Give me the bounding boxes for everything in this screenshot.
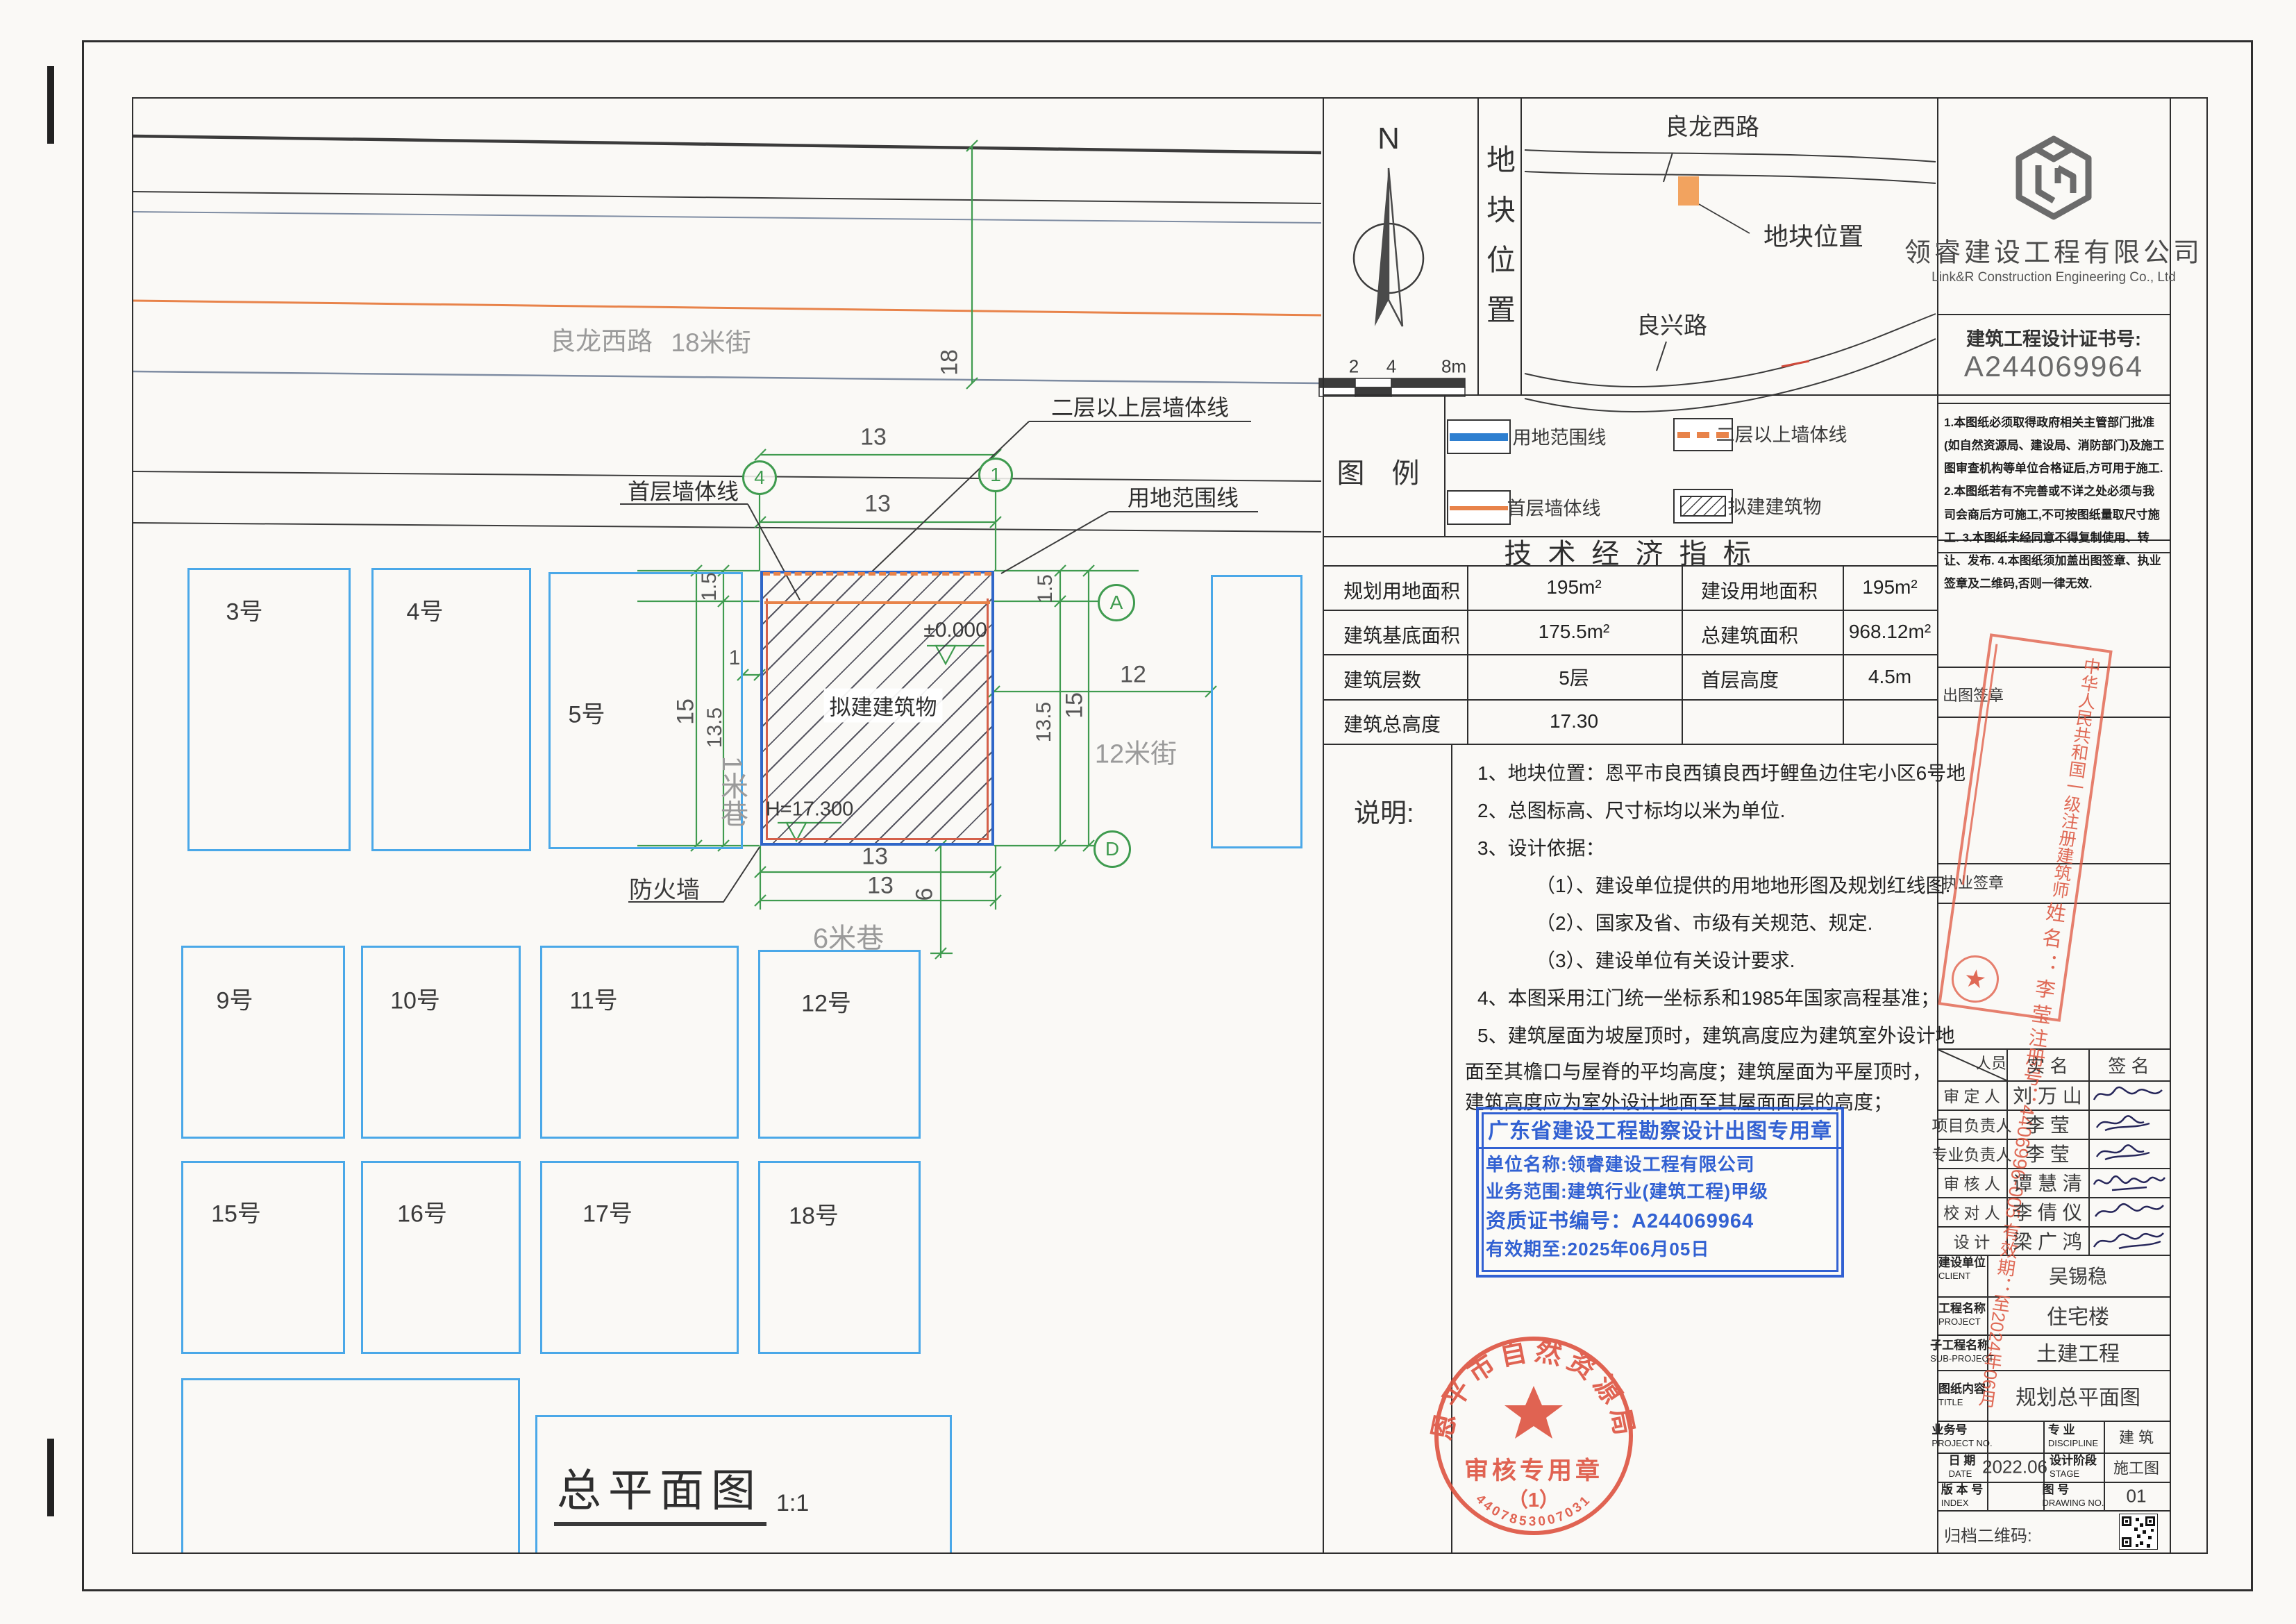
plot-12 — [758, 950, 921, 1139]
plot-label: 16号 — [397, 1195, 447, 1229]
ib-r7-zh2-text: 图 号 — [2042, 1483, 2069, 1496]
ib-r5-value2: 建 筑 — [2119, 1425, 2154, 1448]
ib-r1-value: 吴锡稳 — [2049, 1262, 2107, 1289]
tb-h-cert — [1937, 314, 2170, 315]
dim-6-alley: 6 — [912, 888, 939, 901]
ib-r6-zh: 日 期DATE — [1949, 1454, 1976, 1480]
note-3c: （3）、建设单位有关设计要求. — [1536, 946, 1795, 973]
note-5b: 面至其檐口与屋脊的平均高度；建筑屋面为平屋顶时， — [1465, 1057, 1932, 1085]
tb-v-ind1 — [1467, 565, 1468, 744]
plan-title-scale: 1:1 — [776, 1490, 809, 1517]
dim-13-bottom-a: 13 — [862, 844, 888, 871]
plot-17 — [540, 1161, 739, 1354]
plot-label: 11号 — [569, 982, 617, 1016]
street-label-6m: 6米巷 — [813, 916, 884, 956]
signature-scribble — [2091, 1111, 2166, 1137]
shuoming-label: 说明: — [1354, 792, 1414, 830]
tb-h-ind1 — [1323, 610, 1937, 611]
tb-v-ind3 — [1843, 565, 1844, 744]
blue-stamp-unit: 单位名称:领睿建设工程有限公司 — [1479, 1149, 1841, 1176]
company-name: 领睿建设工程有限公司 — [1904, 231, 2203, 269]
location-side-label: 地块位置 — [1478, 144, 1520, 344]
scale-tick-4: 4 — [1386, 356, 1396, 378]
plot-label: 5号 — [569, 696, 605, 730]
dim-13p5-right: 13.5 — [1032, 702, 1056, 742]
ind-r3-l2: 首层高度 — [1701, 665, 1779, 693]
design-institute-blue-stamp: 广东省建设工程勘察设计出图专用章 单位名称:领睿建设工程有限公司 业务范围:建筑… — [1476, 1107, 1844, 1278]
dim-15-right: 15 — [1062, 692, 1089, 719]
pp-name-1: 刘 万 山 — [2013, 1081, 2082, 1109]
plan-title-underline — [554, 1522, 766, 1526]
pp-header-sign: 签 名 — [2108, 1053, 2149, 1078]
level-zero-label: ±0.000 — [923, 619, 987, 642]
map-marker-label: 地块位置 — [1763, 217, 1863, 253]
ind-r1-v1: 195m² — [1546, 576, 1601, 598]
ind-r4-v1: 17.30 — [1550, 710, 1598, 733]
dim-1-lane: 1 — [729, 646, 741, 670]
plot-16 — [361, 1161, 521, 1354]
cert-label: 建筑工程设计证书号: — [1966, 324, 2141, 351]
reg-stamp-name: 姓 名 ： 李 莹 — [1944, 889, 2070, 1026]
tb-border-right — [2170, 97, 2171, 1554]
legend-swatch-firstfloor — [1447, 490, 1511, 525]
plot-bottom-left — [181, 1378, 520, 1552]
signature-scribble — [2091, 1082, 2166, 1108]
tb-v-ind2 — [1682, 565, 1683, 744]
dim-1p5-left: 1.5 — [698, 572, 721, 601]
ib-r3-value: 土建工程 — [2036, 1337, 2120, 1367]
tb-border-left — [1323, 97, 1324, 1554]
ib-r2-value: 住宅楼 — [2047, 1300, 2109, 1330]
plot-9 — [181, 946, 345, 1139]
north-arrow-icon — [1354, 168, 1423, 326]
ib-r3-en-text: SUB-PROJECT — [1930, 1353, 1994, 1364]
plot-label: 3号 — [226, 593, 263, 627]
grid-bubble-A: A — [1098, 584, 1135, 621]
legend-label-upperwall: 二层以上墙体线 — [1716, 420, 1847, 447]
tb-h-ind3 — [1323, 699, 1937, 701]
ind-r2-v2: 968.12m² — [1849, 621, 1931, 643]
ib-r1-zh: 建设单位CLIENT — [1938, 1256, 1986, 1282]
right-note-1: 1.本图纸必须取得政府相关主管部门批准(如自然资源局、建设局、消防部门)及施工图… — [1944, 416, 2164, 475]
ib-r7-zh-text: 版 本 号 — [1941, 1483, 1983, 1496]
ib-r6-zh2-text: 设计阶段 — [2050, 1454, 2097, 1467]
ib-r5-zh-text: 业务号 — [1932, 1423, 1967, 1437]
ind-r4-l1: 建筑总高度 — [1343, 710, 1441, 737]
plot-label: 12号 — [801, 985, 851, 1019]
legend-label-boundary: 用地范围线 — [1513, 423, 1607, 450]
site-location-marker — [1678, 176, 1699, 206]
signature-scribble — [2091, 1140, 2166, 1166]
pp-header-who: 人员 — [1976, 1051, 2006, 1073]
ib-r6-en2-text: STAGE — [2050, 1468, 2079, 1479]
ib-r7-zh2: 图 号DRAWING NO. — [2042, 1483, 2104, 1509]
map-road-bottom-label: 良兴路 — [1636, 307, 1707, 341]
blue-stamp-valid: 有效期至:2025年06月05日 — [1479, 1234, 1841, 1261]
signature-scribble — [2091, 1228, 2166, 1254]
pp-v2 — [2088, 1048, 2090, 1255]
ib-r6-value: 2022.06 — [1982, 1457, 2047, 1478]
pp-name-3: 李 莹 — [2025, 1139, 2070, 1167]
blue-stamp-scope: 业务范围:建筑行业(建筑工程)甲级 — [1479, 1176, 1841, 1203]
ib-r2-zh-text: 工程名称 — [1938, 1302, 1986, 1315]
tb-v-loc — [1520, 97, 1522, 396]
first-floor-leader-label: 首层墙体线 — [628, 474, 739, 506]
ind-r3-l1: 建筑层数 — [1343, 665, 1421, 693]
north-label: N — [1377, 122, 1400, 156]
ind-r2-l2: 总建筑面积 — [1701, 621, 1798, 648]
plot-label: 9号 — [217, 982, 253, 1016]
scale-tick-8m: 8m — [1441, 356, 1466, 378]
scale-tick-2: 2 — [1349, 356, 1359, 378]
ind-r3-v1: 5层 — [1559, 663, 1589, 691]
tb-h-ind2 — [1323, 654, 1937, 655]
first-floor-wall-line — [764, 601, 990, 604]
pp-role-2: 项目负责人 — [1932, 1112, 2012, 1136]
legend-blue-band — [1450, 433, 1508, 441]
company-name-en: Link&R Construction Engineering Co., Ltd — [1932, 270, 2176, 285]
note-4: 4、本图采用江门统一坐标系和1985年国家高程基准； — [1477, 983, 1940, 1011]
ib-r2-zh: 工程名称PROJECT — [1938, 1302, 1986, 1328]
plot-label: 17号 — [583, 1195, 632, 1229]
upper-wall-leader-label: 二层以上层墙体线 — [1051, 390, 1229, 422]
note-1: 1、地块位置：恩平市良西镇良西圩鲤鱼边住宅小区6号地 — [1477, 758, 1966, 786]
ib-r6-value2: 施工图 — [2113, 1456, 2159, 1478]
tb-h-ind4 — [1323, 744, 1937, 745]
plot-10 — [361, 946, 521, 1139]
dim-13-top-a: 13 — [860, 424, 887, 451]
legend-swatch-building — [1673, 489, 1733, 524]
tb-h-notes-top — [1937, 403, 2170, 404]
plot-3 — [187, 568, 351, 851]
plot-11 — [540, 946, 739, 1139]
ib-r4-en-text: TITLE — [1938, 1397, 1963, 1407]
ib-r4-zh-text: 图纸内容 — [1938, 1382, 1986, 1396]
building-label: 拟建建筑物 — [824, 689, 943, 723]
ib-r7-en-text: INDEX — [1941, 1498, 1969, 1508]
pp-role-5: 校 对 人 — [1943, 1200, 2000, 1223]
grid-bubble-D: D — [1093, 830, 1131, 868]
dim-13p5-left: 13.5 — [703, 708, 727, 748]
qr-label: 归档二维码: — [1944, 1522, 2032, 1546]
ind-r1-l2: 建设用地面积 — [1701, 576, 1818, 604]
ib-r5-en-text: PROJECT NO. — [1932, 1438, 1992, 1448]
ib-r5-zh2: 专 业DISCIPLINE — [2048, 1423, 2098, 1450]
ib-r1-en-text: CLIENT — [1938, 1271, 1970, 1281]
signature-scribble — [2091, 1169, 2166, 1196]
pp-role-6: 设 计 — [1954, 1229, 1990, 1253]
blue-stamp-certno: 资质证书编号：A244069964 — [1479, 1203, 1841, 1234]
building-height-label: H=17.300 — [766, 798, 854, 821]
legend-hatch — [1680, 496, 1726, 517]
map-road-top-label: 良龙西路 — [1665, 108, 1759, 142]
company-logo-icon — [2019, 139, 2088, 217]
dim-13-bottom-b: 13 — [867, 873, 894, 900]
tb-v-legend — [1444, 394, 1446, 536]
pp-role-3: 专业负责人 — [1932, 1141, 2012, 1165]
pp-name-5: 李 倩 仪 — [2013, 1198, 2082, 1225]
stamp-star-icon — [1505, 1386, 1563, 1439]
map-red-tick — [1782, 361, 1809, 367]
plot-right-unlabeled — [1211, 575, 1302, 848]
ib-r6-zh-text: 日 期 — [1949, 1454, 1976, 1467]
street-label-12m: 12米街 — [1095, 733, 1177, 771]
ib-r5-zh2-text: 专 业 — [2048, 1423, 2075, 1437]
ind-r3-v2: 4.5m — [1868, 666, 1911, 688]
legend-swatch-boundary — [1447, 419, 1511, 454]
pp-role-1: 审 定 人 — [1943, 1083, 2000, 1107]
ib-r5-zh: 业务号PROJECT NO. — [1932, 1423, 1992, 1450]
plot-label: 10号 — [390, 982, 440, 1016]
round-stamp-line1: 审核专用章 — [1464, 1457, 1603, 1484]
ib-r7-en2-text: DRAWING NO. — [2042, 1498, 2104, 1508]
ind-r2-v1: 175.5m² — [1539, 621, 1610, 643]
ib-r3-zh-text: 子工程名称 — [1930, 1339, 1989, 1352]
drawing-sheet: 3号 4号 5号 9号 10号 11号 12号 15号 16号 17号 18号 … — [0, 0, 2296, 1624]
legend-label-firstfloor: 首层墙体线 — [1507, 494, 1601, 521]
ib-r6-en-text: DATE — [1949, 1468, 1972, 1479]
dim-15-left: 15 — [673, 698, 700, 725]
upper-wall-dashed-line — [763, 572, 991, 576]
natural-resources-round-stamp: 恩平市自然资源局 审核专用章 （1） 4407853007031 — [1425, 1330, 1643, 1549]
dim-13-top-b: 13 — [864, 491, 891, 518]
ind-r1-l1: 规划用地面积 — [1343, 576, 1460, 604]
archive-qr-code — [2119, 1514, 2158, 1550]
location-map-lines — [1525, 150, 1936, 412]
tb-h-row1 — [1323, 394, 2170, 396]
pp-name-4: 谭 慧 清 — [2013, 1169, 2082, 1196]
dim-12-street: 12 — [1120, 662, 1146, 689]
firewall-label: 防火墙 — [629, 871, 700, 905]
ib-h7 — [1937, 1510, 2170, 1512]
grid-bubble-1: 1 — [978, 458, 1013, 492]
street-label-1m: 1米巷 — [712, 756, 752, 827]
ib-r3-zh: 子工程名称SUB-PROJECT — [1930, 1339, 1994, 1365]
plan-title: 总平面图 — [557, 1455, 762, 1519]
note-3a: （1）、建设单位提供的用地地形图及规划红线图. — [1536, 871, 1950, 898]
note-3: 3、设计依据： — [1477, 833, 1605, 861]
legend-title: 图 例 — [1336, 451, 1429, 491]
blue-stamp-title: 广东省建设工程勘察设计出图专用章 — [1479, 1110, 1841, 1149]
note-5: 5、建筑屋面为坡屋顶时，建筑高度应为建筑室外设计地 — [1477, 1021, 1955, 1048]
pp-name-2: 李 莹 — [2025, 1110, 2070, 1138]
plot-15 — [181, 1161, 345, 1354]
ib-r7-value2: 01 — [2127, 1486, 2147, 1507]
dim-18: 18 — [937, 349, 964, 376]
ib-h4 — [1937, 1421, 2170, 1422]
street-label-18m: 18米街 — [671, 321, 751, 359]
plot-label: 15号 — [211, 1195, 261, 1229]
signature-scribble — [2091, 1198, 2166, 1225]
ib-r7-zh: 版 本 号INDEX — [1941, 1483, 1983, 1509]
street-label-mainroad: 良龙西路 — [550, 320, 653, 358]
boundary-leader-label: 用地范围线 — [1128, 480, 1239, 512]
grid-bubble-4: 4 — [742, 460, 777, 495]
indicators-title: 技 术 经 济 指 标 — [1504, 531, 1755, 571]
pp-role-4: 审 核 人 — [1943, 1171, 2000, 1194]
ib-r5-en2-text: DISCIPLINE — [2048, 1438, 2098, 1448]
round-stamp-line2: （1） — [1508, 1489, 1559, 1512]
plot-4 — [371, 568, 531, 851]
ib-r4-value: 规划总平面图 — [2016, 1380, 2140, 1411]
plot-18 — [758, 1161, 921, 1354]
ib-r2-en-text: PROJECT — [1938, 1316, 1981, 1327]
plot-label: 4号 — [407, 593, 444, 627]
note-2: 2、总图标高、尺寸标均以米为单位. — [1477, 796, 1785, 823]
general-notes-right: 1.本图纸必须取得政府相关主管部门批准(如自然资源局、建设局、消防部门)及施工图… — [1944, 411, 2165, 535]
pp-name-6: 梁 广 鸿 — [2013, 1227, 2082, 1255]
ind-r2-l1: 建筑基底面积 — [1343, 621, 1460, 648]
cert-number: A244069964 — [1964, 350, 2143, 383]
ind-r1-v2: 195m² — [1862, 576, 1917, 598]
legend-orange-band — [1450, 506, 1508, 510]
ib-r1-zh-text: 建设单位 — [1938, 1256, 1986, 1269]
pp-header-name: 实 名 — [2027, 1053, 2068, 1078]
plot-label: 18号 — [789, 1197, 839, 1231]
note-3b: （2）、国家及省、市级有关规范、规定. — [1536, 908, 1872, 936]
dim-1p5-right: 1.5 — [1034, 574, 1057, 603]
ib-r6-zh2: 设计阶段STAGE — [2050, 1454, 2097, 1480]
ib-r4-zh: 图纸内容TITLE — [1938, 1382, 1986, 1409]
legend-label-building: 拟建建筑物 — [1728, 492, 1822, 519]
